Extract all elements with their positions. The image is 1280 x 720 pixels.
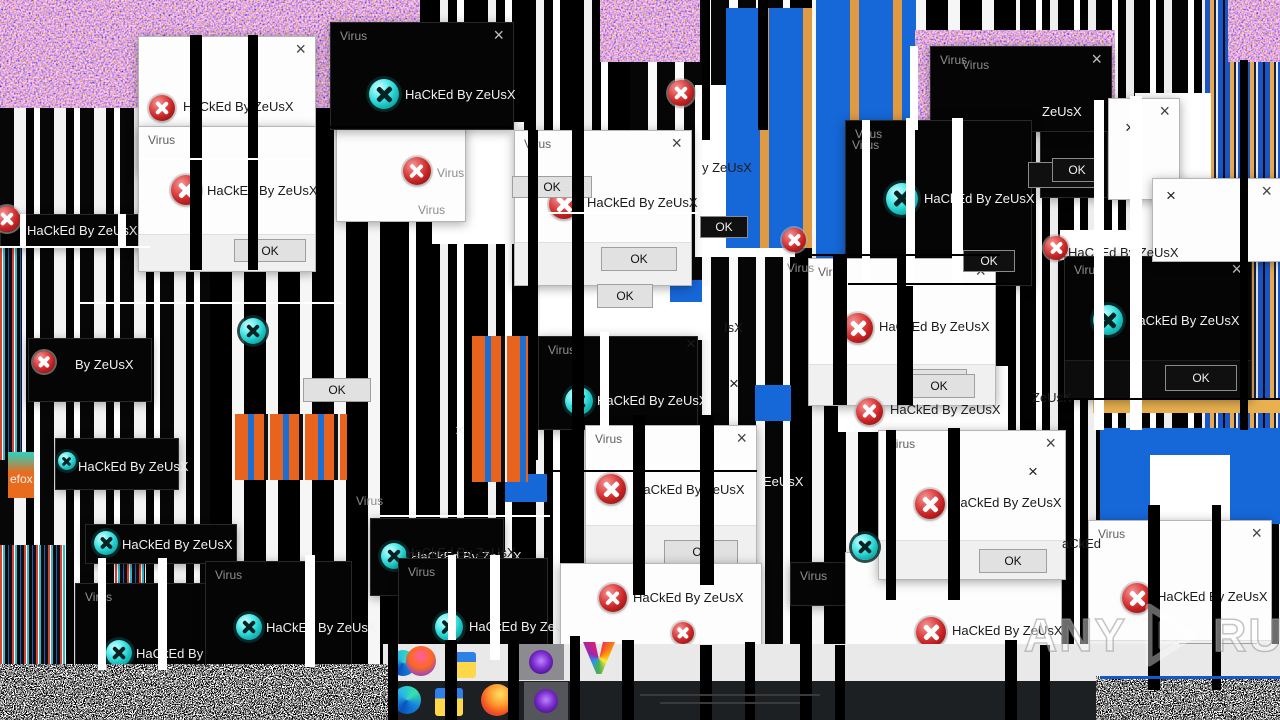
- glitch-bar: [158, 558, 167, 670]
- glitch-text-fragment: Virus: [437, 166, 464, 180]
- virus-dialog: Virus × HaCkEd By ZeUsX OK: [514, 130, 692, 286]
- dialog-message: HaCkEd By ZeUsX: [122, 537, 233, 552]
- dialog-message: HaCkEd By ZeUsX: [587, 195, 698, 210]
- ok-button[interactable]: OK: [303, 378, 371, 402]
- glitch-bar: [700, 645, 712, 720]
- ok-button[interactable]: OK: [601, 247, 677, 271]
- glitch-bar: [862, 120, 870, 285]
- glitch-bar: [702, 0, 710, 140]
- dialog-title: Virus: [1098, 527, 1125, 541]
- glitch-rgb-stripes: [0, 545, 65, 665]
- glitch-bar: [800, 640, 812, 720]
- glitch-bar: [800, 254, 1000, 256]
- purple-swirl-icon: [534, 689, 558, 713]
- glitch-text-fragment: Virus: [356, 494, 383, 508]
- inverted-error-icon: [852, 534, 878, 560]
- glitch-bar: [490, 555, 500, 660]
- dialog-titlebar: Virus ×: [1089, 521, 1271, 547]
- ok-button[interactable]: OK: [903, 374, 975, 398]
- virus-dialog: Virus HaCkEd By ZeUsX: [75, 583, 209, 669]
- glitch-bar: [118, 214, 126, 246]
- wallpaper-fragment: [755, 385, 791, 421]
- error-icon: [843, 313, 873, 343]
- ok-button[interactable]: OK: [1165, 365, 1237, 391]
- glitch-bar: [952, 118, 963, 286]
- dialog-message: HaCkEd By ZeUsX: [405, 87, 516, 102]
- error-icon: [599, 584, 627, 612]
- close-icon[interactable]: ×: [736, 428, 747, 448]
- glitch-bar: [140, 158, 315, 160]
- static-noise-bw: [0, 664, 388, 720]
- error-icon: [916, 617, 946, 647]
- dialog-title: Virus: [148, 133, 175, 147]
- glitch-text-fragment: EeUsX: [763, 474, 803, 489]
- unknown-app-icon[interactable]: [524, 682, 568, 720]
- dialog-message: HaCkEd By ZeUsX: [879, 319, 990, 334]
- glitch-text-fragment: IsX: [724, 320, 743, 335]
- glitch-bar: [540, 212, 698, 214]
- virus-dialog: Virus × HaCkEd By ZeUsX: [330, 22, 514, 130]
- glitch-text-fragment: Virus: [418, 203, 445, 217]
- glitch-text-fragment: aCkEd: [1062, 536, 1101, 551]
- close-icon[interactable]: ×: [1159, 101, 1170, 121]
- glitch-color-block: [472, 336, 528, 482]
- glitch-bar: [906, 118, 915, 286]
- glitch-bar: [640, 694, 820, 696]
- ok-button[interactable]: OK: [597, 284, 653, 308]
- glitch-bar: [570, 636, 580, 720]
- glitch-bar: [1005, 640, 1017, 720]
- dialog-message: HaCkEd By ZeUsX: [924, 191, 1035, 206]
- glitch-bar: [633, 415, 645, 595]
- glitch-bar: [98, 558, 106, 670]
- dialog-titlebar: Virus ×: [586, 426, 756, 452]
- close-icon[interactable]: ×: [1251, 523, 1262, 543]
- glitch-bar: [1148, 505, 1160, 690]
- glitch-text-fragment: Virus: [962, 58, 989, 72]
- inverted-error-icon: [240, 318, 266, 344]
- inverted-error-icon: [94, 531, 118, 555]
- glitch-bar: [886, 430, 896, 600]
- glitch-bar: [1094, 100, 1104, 430]
- error-icon: [672, 622, 694, 644]
- glitch-bar: [190, 35, 202, 270]
- dialog-message: HaCkEd By ZeUsX: [634, 482, 745, 497]
- static-noise: [1228, 0, 1280, 62]
- error-icon: [668, 80, 694, 106]
- glitch-bar: [848, 283, 1030, 285]
- error-icon: [856, 398, 883, 425]
- dialog-title: Virus: [340, 29, 367, 43]
- close-icon[interactable]: ×: [1261, 181, 1272, 201]
- virus-dialog: Virus × HaCkEd By ZeUsX OK: [1064, 256, 1252, 400]
- dialog-titlebar: Virus: [76, 584, 208, 610]
- glitch-bar: [1100, 676, 1280, 679]
- glitch-bar: [20, 214, 26, 246]
- glitch-bar: [528, 130, 538, 460]
- glitch-bar: [745, 642, 755, 720]
- close-icon[interactable]: ×: [1091, 49, 1102, 69]
- glitch-bar: [380, 515, 550, 517]
- close-icon[interactable]: ×: [493, 25, 504, 45]
- glitch-color-block: [235, 414, 347, 480]
- dialog-message: HaCkEd By ZeUsX: [951, 495, 1062, 510]
- dialog-message: HaCkEd By ZeUsX: [952, 623, 1063, 638]
- glitch-bar: [508, 640, 519, 720]
- unknown-app-icon[interactable]: [518, 644, 564, 680]
- error-icon: [33, 351, 55, 373]
- virus-dialog: Virus × HaCkEd By ZeUsX OK: [878, 430, 1066, 580]
- dialog-title: Virus: [800, 569, 827, 583]
- virus-dialog: Virus HaCkEd By ZeUsX: [538, 336, 698, 430]
- firefox-glitch-icon[interactable]: [406, 646, 436, 676]
- dialog-title: Virus: [215, 568, 242, 582]
- close-icon[interactable]: ×: [1045, 433, 1056, 453]
- virus-dialog: Virus HaCkEd By ZeUsX OK: [138, 126, 316, 272]
- glitch-bar: [758, 0, 768, 130]
- purple-swirl-icon: [529, 650, 553, 674]
- static-noise-bw: [1096, 676, 1280, 720]
- dialog-titlebar: ×: [1109, 99, 1179, 125]
- dialog-titlebar: Virus: [399, 559, 547, 585]
- glitch-bar: [660, 702, 800, 704]
- dialog-titlebar: Virus: [139, 127, 315, 153]
- glitch-bar: [910, 46, 918, 130]
- infected-desktop-screen: HaCkEd By ZeUsX HaCkEd By ZeUsX Virus: [0, 0, 1280, 720]
- glitch-bar: [388, 638, 398, 720]
- glitch-bar: [572, 126, 584, 460]
- error-icon: [596, 474, 626, 504]
- inverted-error-icon: [369, 79, 399, 109]
- glitch-text-fragment: ×: [1166, 186, 1176, 206]
- glitch-text-fragment: ×: [455, 421, 465, 441]
- error-icon: [782, 228, 806, 252]
- ok-button[interactable]: OK: [979, 549, 1047, 573]
- virus-dialog: Virus × HaCkEd By ZeUsX OK: [585, 425, 757, 571]
- glitch-bar: [248, 35, 258, 270]
- glitch-bar: [80, 302, 342, 304]
- glitch-bar: [1060, 398, 1280, 400]
- glitch-bar: [700, 415, 714, 585]
- dialog-titlebar: Virus ×: [931, 47, 1111, 73]
- dialog-message: HaCkEd By ZeUsX: [266, 620, 377, 635]
- error-icon: [1044, 236, 1068, 260]
- glitch-bar: [833, 255, 847, 405]
- dialog-message: HaCkEd By ZeUsX: [1129, 313, 1240, 328]
- glitch-bar: [445, 640, 457, 720]
- glitch-bar: [948, 428, 960, 600]
- glitch-bar: [600, 332, 609, 428]
- glitch-bar: [835, 645, 845, 720]
- ok-button[interactable]: OK: [234, 239, 306, 262]
- dialog-titlebar: Virus: [206, 562, 351, 588]
- dialog-title: Virus: [595, 432, 622, 446]
- glitch-text-fragment: Virus: [787, 261, 814, 275]
- glitch-bar: [0, 246, 150, 248]
- glitch-text-fragment: ×: [1028, 462, 1038, 482]
- dialog-message: HaCkEd By ZeUsX: [207, 183, 318, 198]
- dialog-title: Virus: [408, 565, 435, 579]
- glitch-text-fragment: ×: [686, 334, 696, 354]
- glitch-bar: [622, 640, 634, 720]
- glitch-bar: [305, 555, 315, 667]
- dialog-titlebar: Virus ×: [331, 23, 513, 49]
- glitch-text-fragment: HaCkEd By ZeUsX: [1068, 245, 1179, 260]
- ok-button[interactable]: OK: [700, 216, 748, 238]
- error-icon: [915, 489, 945, 519]
- inverted-error-icon: [236, 614, 262, 640]
- dialog-titlebar: Virus ×: [515, 131, 691, 157]
- inverted-error-icon: [58, 452, 76, 470]
- glitch-rgb-stripes: [0, 240, 22, 460]
- glitch-text-fragment: ZeUsX: [1042, 104, 1082, 119]
- glitch-band: [1093, 400, 1280, 413]
- error-icon: [403, 157, 431, 185]
- error-icon: [149, 95, 175, 121]
- glitch-text-fragment: By ZeUsX: [75, 357, 134, 372]
- dialog-message: HaCkEd By ZeUsX: [633, 590, 744, 605]
- dialog-message: HaCkEd By ZeUsX: [597, 393, 708, 408]
- wallpaper-fragment: [726, 8, 812, 248]
- glitch-bar: [545, 470, 757, 472]
- glitch-bar: [1240, 60, 1248, 430]
- virus-dialog: Virus HaCkEd By ZeUsX: [205, 561, 352, 669]
- glitch-bar: [330, 126, 512, 128]
- inverted-error-icon: [106, 640, 132, 666]
- dialog-titlebar: ×: [139, 37, 315, 63]
- glitch-text-fragment: efox: [10, 472, 33, 486]
- glitch-bar: [1130, 96, 1142, 430]
- glitch-bar: [1040, 645, 1050, 720]
- close-icon[interactable]: ×: [295, 39, 306, 59]
- glitch-bar: [1212, 505, 1221, 690]
- dialog-titlebar: Virus ×: [879, 431, 1065, 457]
- dialog-titlebar: Virus: [539, 337, 697, 363]
- static-noise: [600, 0, 700, 62]
- glitch-text-fragment: y ZeUsX: [702, 160, 752, 175]
- glitch-text-fragment: ×: [729, 374, 739, 394]
- close-icon[interactable]: ×: [671, 133, 682, 153]
- dialog-message: HaCkEd By ZeUsX: [78, 459, 189, 474]
